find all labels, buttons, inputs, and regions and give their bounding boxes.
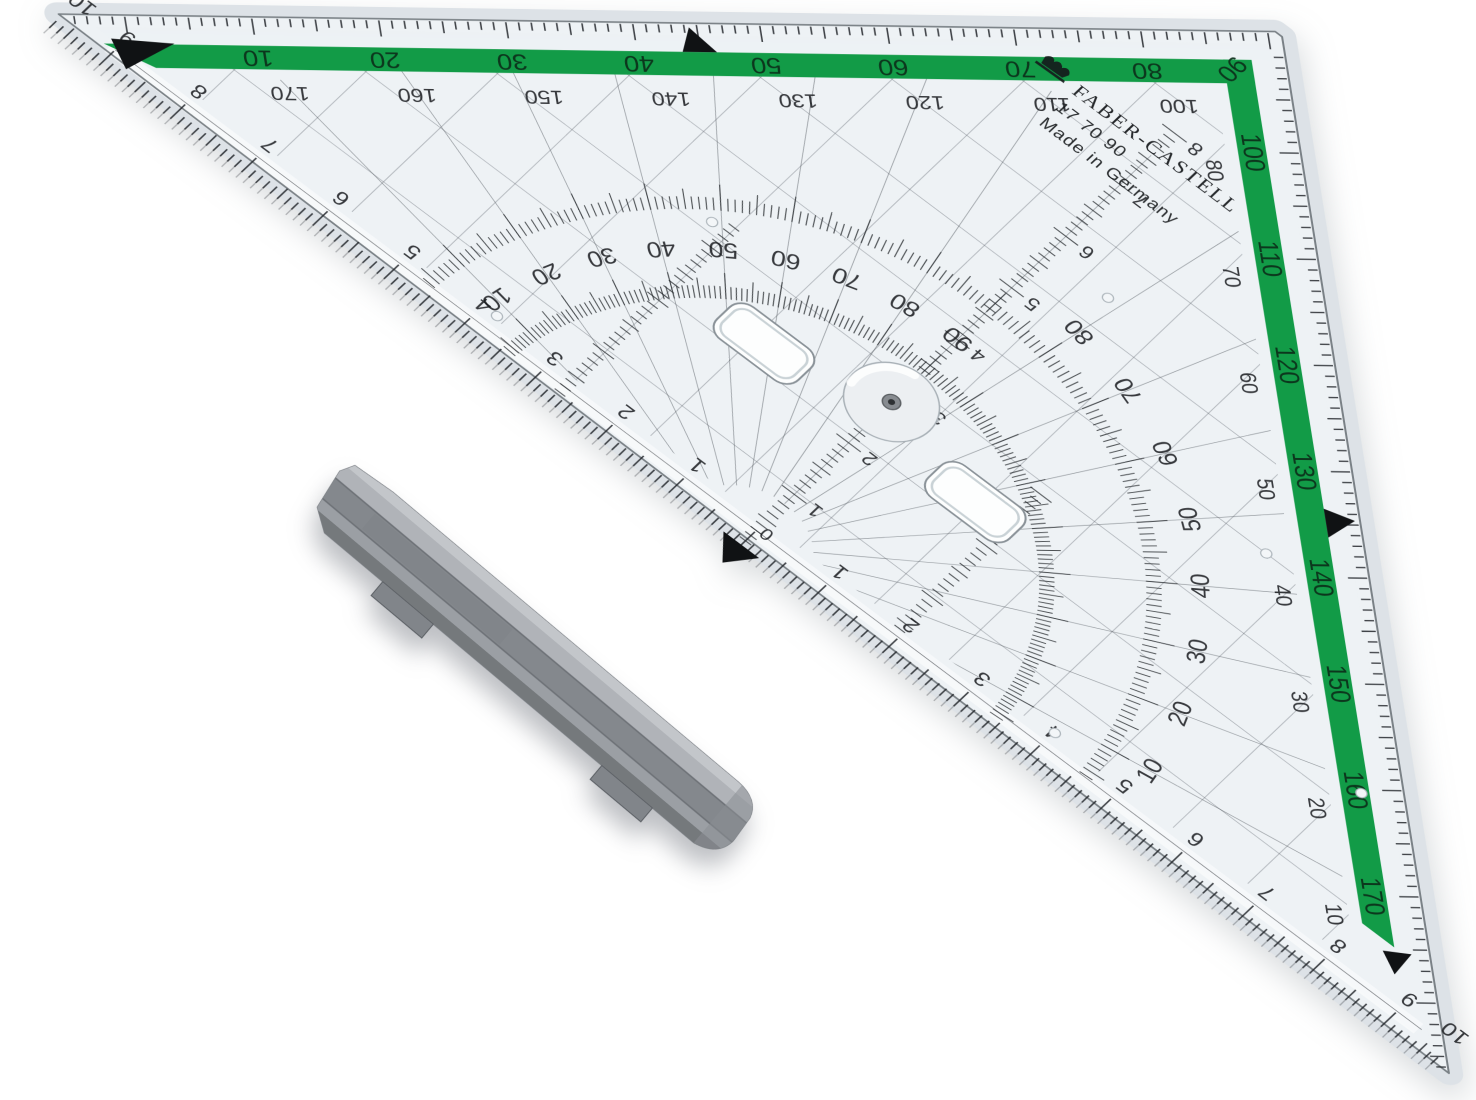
bevel-tick <box>150 108 157 114</box>
degree-number: 120 <box>904 91 946 114</box>
bevel-tick <box>499 370 506 375</box>
bevel-tick <box>235 172 242 178</box>
green-scale-number: 110 <box>1251 240 1287 277</box>
bevel-tick <box>762 567 769 573</box>
bevel-tick <box>627 466 634 471</box>
bevel-tick <box>577 428 584 433</box>
bevel-tick <box>691 514 698 520</box>
bevel-tick <box>548 407 555 412</box>
bevel-tick <box>135 97 142 103</box>
bevel-tick <box>406 300 413 306</box>
bevel-tick <box>463 343 470 349</box>
bevel-tick <box>43 28 50 33</box>
bevel-tick <box>78 55 85 60</box>
bevel-tick <box>50 33 57 38</box>
green-scale-number: 70 <box>1003 56 1037 82</box>
bevel-tick <box>93 65 100 70</box>
bevel-tick <box>598 444 605 449</box>
green-scale-number: 150 <box>1320 665 1356 704</box>
bevel-tick <box>591 439 598 444</box>
bevel-tick <box>677 503 684 509</box>
degree-tick <box>1145 564 1160 565</box>
protractor-number: 50 <box>708 236 739 263</box>
green-scale-number: 30 <box>495 48 529 74</box>
degree-number: 60 <box>1234 372 1264 394</box>
bevel-tick <box>769 573 776 579</box>
bevel-tick <box>563 418 570 423</box>
bevel-tick <box>506 375 513 380</box>
bevel-tick <box>712 530 719 536</box>
green-scale-number: 130 <box>1285 452 1321 491</box>
bevel-tick <box>363 268 370 274</box>
bevel-tick <box>342 252 349 258</box>
degree-number: 20 <box>1302 797 1332 819</box>
bevel-tick <box>513 380 520 385</box>
bevel-tick <box>413 306 420 312</box>
bevel-tick <box>306 225 313 231</box>
bevel-tick <box>335 247 342 253</box>
green-scale-number: 170 <box>1354 877 1390 916</box>
bevel-tick <box>392 290 399 296</box>
bevel-tick <box>192 140 199 146</box>
bevel-tick <box>228 167 235 173</box>
bevel-tick <box>442 327 449 333</box>
bevel-tick <box>356 263 363 269</box>
bevel-tick <box>299 220 306 226</box>
bevel-tick <box>491 364 498 369</box>
bevel-tick <box>534 396 541 401</box>
bevel-tick <box>783 583 790 589</box>
bevel-tick <box>449 332 456 338</box>
bevel-tick <box>420 311 427 317</box>
bevel-tick <box>370 273 377 279</box>
degree-tick <box>1141 540 1156 541</box>
degree-tick <box>1038 559 1053 560</box>
bevel-tick <box>349 257 356 263</box>
bevel-tick <box>57 39 64 44</box>
green-scale-number: 10 <box>241 45 275 71</box>
degree-number: 40 <box>1268 585 1298 607</box>
bevel-tick <box>584 434 591 439</box>
bevel-tick <box>477 354 484 359</box>
degree-number: 140 <box>650 87 692 110</box>
degree-number: 30 <box>1285 691 1315 713</box>
bevel-tick <box>798 594 805 600</box>
bevel-tick <box>178 129 185 135</box>
green-scale-number: 20 <box>368 47 402 73</box>
bevel-tick <box>285 209 292 215</box>
green-scale-number: 40 <box>622 50 656 76</box>
degree-number: 130 <box>777 89 819 112</box>
bevel-tick <box>321 236 328 242</box>
bevel-tick <box>698 519 705 525</box>
green-scale-number: 100 <box>1234 133 1270 172</box>
bevel-tick <box>292 215 299 221</box>
bevel-tick <box>385 284 392 290</box>
bevel-tick <box>328 241 335 247</box>
bevel-tick <box>249 183 256 189</box>
bevel-tick <box>484 359 491 364</box>
bevel-tick <box>634 471 641 476</box>
degree-number: 50 <box>1251 478 1281 500</box>
bevel-tick <box>427 316 434 322</box>
bevel-tick <box>171 124 178 130</box>
bevel-tick <box>776 578 783 584</box>
green-scale-number: 60 <box>876 54 910 80</box>
bevel-tick <box>256 188 263 194</box>
bevel-tick <box>434 322 441 328</box>
bevel-tick <box>620 460 627 465</box>
bevel-tick <box>470 348 477 354</box>
bevel-tick <box>114 81 121 86</box>
product-photo: 1020304050607080901001101201301401501601… <box>0 0 1476 1100</box>
degree-number: 10 <box>1319 903 1349 925</box>
bevel-tick <box>648 482 655 487</box>
protractor-number: 40 <box>1186 572 1217 599</box>
bevel-tick <box>121 87 128 92</box>
bevel-tick <box>605 450 612 455</box>
degree-number: 70 <box>1217 266 1247 288</box>
bevel-tick <box>85 60 92 65</box>
green-scale-number: 140 <box>1302 558 1338 597</box>
bevel-tick <box>313 231 320 237</box>
bevel-tick <box>142 103 149 109</box>
bevel-tick <box>263 193 270 199</box>
bevel-tick <box>100 71 107 76</box>
bevel-tick <box>107 76 114 81</box>
bevel-tick <box>128 92 135 97</box>
green-scale-number: 50 <box>749 52 783 78</box>
bevel-tick <box>684 509 691 515</box>
degree-number: 170 <box>269 82 311 105</box>
green-scale-number: 160 <box>1337 771 1373 810</box>
bevel-tick <box>655 487 662 492</box>
bevel-tick <box>64 44 71 49</box>
bevel-tick <box>185 135 192 141</box>
bevel-tick <box>71 49 78 54</box>
bevel-tick <box>527 391 534 396</box>
bevel-tick <box>242 177 249 183</box>
degree-number: 150 <box>523 86 565 109</box>
bevel-tick <box>570 423 577 428</box>
bevel-tick <box>221 161 228 167</box>
bevel-tick <box>199 145 206 151</box>
green-scale-number: 80 <box>1130 57 1164 83</box>
set-square: 1020304050607080901001101201301401501601… <box>35 0 1476 1074</box>
bevel-tick <box>612 455 619 460</box>
degree-number: 100 <box>1158 95 1200 118</box>
bevel-tick <box>541 402 548 407</box>
bevel-tick <box>662 493 669 499</box>
bevel-tick <box>271 199 278 205</box>
bevel-tick <box>556 412 563 417</box>
green-scale-number: 120 <box>1268 346 1304 385</box>
bevel-tick <box>214 156 221 162</box>
bevel-tick <box>378 279 385 285</box>
bevel-tick <box>790 589 797 595</box>
degree-number: 160 <box>396 84 438 107</box>
bevel-tick <box>278 204 285 210</box>
bevel-tick <box>456 338 463 344</box>
bevel-tick <box>157 113 164 119</box>
bevel-tick <box>207 151 214 157</box>
bevel-tick <box>520 386 527 391</box>
bevel-tick <box>705 525 712 531</box>
bevel-tick <box>641 476 648 481</box>
degree-tick <box>1035 541 1050 542</box>
bevel-tick <box>755 562 762 568</box>
bevel-tick <box>669 498 676 504</box>
bevel-tick <box>399 295 406 301</box>
geometry-set-square-photo: 1020304050607080901001101201301401501601… <box>0 0 1476 1100</box>
bevel-tick <box>164 119 171 125</box>
